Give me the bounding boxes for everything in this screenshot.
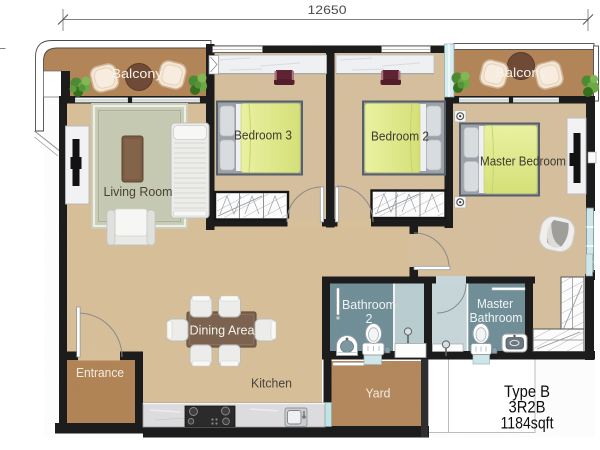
svg-text:Yard: Yard xyxy=(366,386,391,401)
svg-text:Bedroom 3: Bedroom 3 xyxy=(234,128,292,143)
svg-text:Entrance: Entrance xyxy=(76,366,124,380)
svg-text:Balcony: Balcony xyxy=(496,66,548,80)
svg-text:Master: Master xyxy=(477,297,513,311)
svg-text:Bathroom: Bathroom xyxy=(342,298,396,312)
svg-text:Bedroom 2: Bedroom 2 xyxy=(371,129,429,144)
svg-text:Living Room: Living Room xyxy=(104,184,173,199)
svg-text:Kitchen: Kitchen xyxy=(251,376,292,391)
svg-text:Dining Area: Dining Area xyxy=(190,324,255,338)
svg-text:1184sqft: 1184sqft xyxy=(501,414,554,433)
svg-text:12650: 12650 xyxy=(308,5,347,17)
svg-text:Master Bedroom: Master Bedroom xyxy=(480,154,566,169)
svg-text:Balcony: Balcony xyxy=(112,67,164,81)
svg-text:Bathroom: Bathroom xyxy=(470,311,523,325)
svg-text:2: 2 xyxy=(366,312,373,326)
